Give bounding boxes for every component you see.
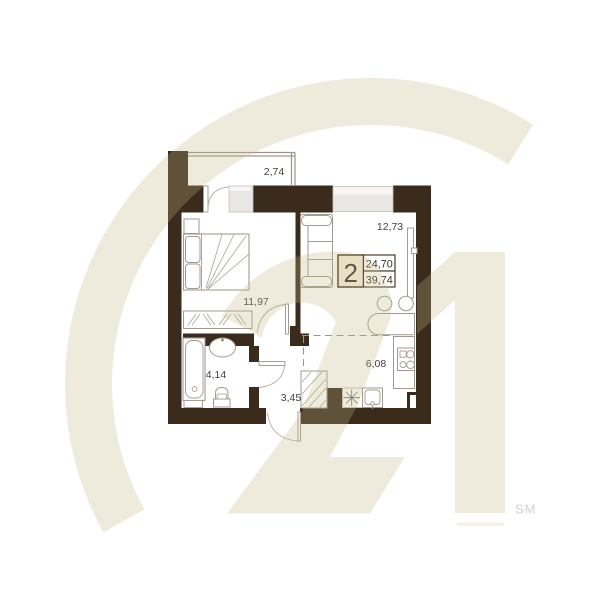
svg-text:2,74: 2,74 <box>264 166 285 178</box>
svg-text:SM: SM <box>515 502 537 517</box>
svg-text:4,14: 4,14 <box>206 369 227 381</box>
svg-text:3,45: 3,45 <box>281 392 302 404</box>
svg-text:12,73: 12,73 <box>377 221 403 233</box>
